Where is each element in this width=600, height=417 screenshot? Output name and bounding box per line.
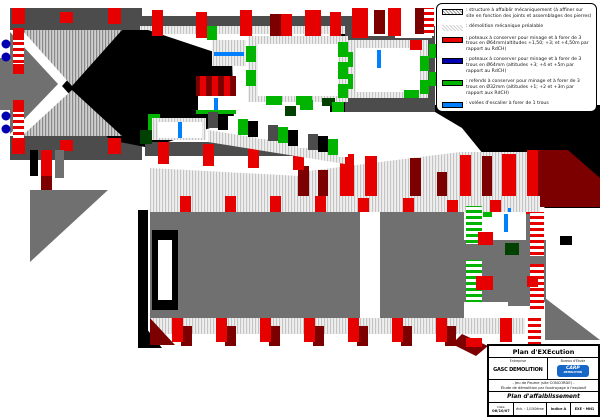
- project-line2: Étude de démolition par foudroyage à l'e…: [489, 386, 598, 391]
- plan-shape-red: [152, 10, 163, 36]
- plan-shape-darkBlue: [2, 112, 11, 121]
- legend-swatch-green: [442, 80, 463, 86]
- plan-shape-darkGreen: [285, 106, 296, 116]
- legend-swatch-red: [442, 37, 463, 43]
- plan-shape-red: [403, 198, 414, 214]
- legend-label: : structure à affaiblir mécaniquement (à…: [466, 8, 592, 19]
- plan-shape-red: [305, 10, 321, 38]
- plan-shape-green: [266, 96, 282, 105]
- plan-shape-lightBlue: [377, 50, 381, 68]
- plan-shape-red: [60, 140, 73, 151]
- plan-shape-green: [207, 26, 217, 40]
- plan-shape-red: [270, 196, 281, 214]
- plan-shape-stripesRW: [13, 112, 24, 138]
- plan-shape-red: [330, 12, 341, 38]
- plan-shape-red: [500, 318, 512, 342]
- plan-shape-red: [527, 276, 538, 287]
- project-description: - Jeu de Paume (site CONCORDE) - Étude d…: [489, 380, 598, 392]
- engineer-label: Bureau d'Etude: [561, 359, 586, 363]
- plan-shape-red: [281, 14, 292, 38]
- plan-shape-red: [158, 142, 169, 164]
- plan-shape-grayDark: [208, 112, 218, 128]
- plan-shape-darkRed: [374, 10, 385, 34]
- plan-shape-green: [246, 70, 256, 86]
- legend-item-4: : refends à conserver pour minage et à f…: [442, 79, 592, 96]
- plan-shape-red: [196, 12, 207, 38]
- plan-shape-black: [288, 130, 298, 146]
- plan-shape-darkBlue: [2, 53, 11, 62]
- plan-shape-darkRed: [270, 14, 281, 38]
- plan-shape-green: [238, 119, 248, 135]
- plan-shape-red: [358, 198, 369, 214]
- plan-shape-black: [218, 114, 228, 130]
- legend-swatch-hatch-structure: [442, 9, 463, 15]
- plan-shape-hall-gap: [360, 212, 380, 318]
- drawing-page: : structure à affaiblir mécaniquement (à…: [0, 0, 600, 417]
- plan-shape-southwest-roof: [30, 190, 108, 262]
- plan-shape-white: [338, 141, 348, 157]
- legend-item-5: : volées d'escalier à forer de 1 trous: [442, 101, 592, 108]
- plan-shape-hall-a: [150, 212, 360, 318]
- legend-label: : poteaux à conserver pour minage et à f…: [466, 36, 592, 53]
- plan-shape-lightBlue: [214, 52, 244, 56]
- plan-shape-green: [404, 90, 419, 98]
- drawing-number-cell: EXE - MN1: [571, 403, 598, 415]
- plan-shape-green: [246, 46, 256, 62]
- plan-shape-red: [200, 76, 206, 96]
- plan-shape-red: [216, 318, 227, 342]
- plan-shape-green: [338, 42, 348, 57]
- contractor-name: GASC DEMOLITION: [493, 367, 543, 373]
- legend-box: : structure à affaiblir mécaniquement (à…: [436, 3, 597, 112]
- plan-shape-red: [436, 318, 447, 342]
- plan-shape-white: [228, 116, 238, 132]
- plan-shape-black: [560, 236, 572, 245]
- plan-shape-darkGreen: [505, 243, 519, 255]
- plan-shape-red: [13, 100, 24, 112]
- plan-shape-red: [225, 196, 236, 214]
- plan-shape-green: [483, 212, 493, 217]
- plan-shape-lightBlue: [504, 214, 508, 232]
- plan-shape-grayDark: [268, 125, 278, 141]
- legend-item-2: : poteaux à conserver pour minage et à f…: [442, 36, 592, 53]
- plan-shape-red: [108, 138, 121, 154]
- plan-shape-green: [300, 100, 313, 110]
- plan-shape-green: [420, 80, 429, 94]
- plan-shape-red: [172, 318, 183, 342]
- plan-shape-lightBlue: [178, 122, 182, 138]
- plan-shape-grayDark: [308, 134, 318, 150]
- index-cell: Indice A: [547, 403, 571, 415]
- plan-shape-grayMid: [55, 150, 64, 178]
- plan-shape-red: [203, 144, 214, 166]
- legend-item-3: : poteaux à conserver pour minage et à f…: [442, 57, 592, 74]
- legend-swatch-hatch-demolition: [442, 25, 463, 31]
- plan-shape-red: [212, 76, 218, 96]
- plan-shape-wing-bottom-edge: [150, 318, 525, 334]
- contractor-label: Entreprise: [510, 359, 526, 363]
- plan-shape-darkBlue: [2, 125, 11, 134]
- plan-shape-darkBlue: [2, 40, 11, 49]
- plan-shape-red: [13, 64, 24, 74]
- plan-shape-east-stair: [492, 212, 526, 240]
- drawing-title: Plan d'affaiblissement: [489, 392, 598, 403]
- legend-label: : poteaux à conserver pour minage et à f…: [466, 57, 592, 74]
- date-cell: Date 06/10/07: [489, 403, 514, 415]
- engineer-cell: Bureau d'Etude CARP DEMOLITION: [548, 358, 598, 379]
- plan-shape-red: [12, 8, 25, 24]
- plan-shape-black: [318, 136, 328, 152]
- plan-shape-darkGreen: [140, 130, 152, 144]
- plan-shape-stripesRW: [528, 318, 541, 344]
- plan-shape-pavilion-top-wall: [10, 8, 142, 30]
- plan-shape-white: [298, 132, 308, 148]
- engineer-logo: CARP DEMOLITION: [557, 365, 589, 377]
- plan-shape-red: [466, 338, 482, 347]
- plan-shape-lightBlue: [214, 98, 218, 111]
- plan-shape-red: [476, 276, 493, 290]
- legend-item-0: : structure à affaiblir mécaniquement (à…: [442, 8, 592, 19]
- plan-shape-green: [338, 84, 348, 98]
- plan-shape-red: [180, 196, 191, 214]
- plan-shape-green: [332, 102, 344, 112]
- plan-shape-red: [304, 318, 315, 342]
- title-block: Plan d'EXEcution Entreprise GASC DEMOLIT…: [487, 344, 600, 417]
- plan-shape-white: [158, 240, 172, 300]
- plan-shape-red: [41, 150, 52, 178]
- plan-shape-hall-b: [380, 212, 464, 318]
- plan-shape-red: [260, 318, 271, 342]
- plan-shape-court-b: [356, 48, 420, 92]
- plan-shape-green: [278, 127, 288, 143]
- legend-label: : volées d'escalier à forer de 1 trous: [466, 101, 549, 107]
- plan-shape-red: [108, 8, 121, 24]
- contractor-cell: Entreprise GASC DEMOLITION: [489, 358, 548, 379]
- plan-shape-stripesRW: [13, 40, 24, 66]
- plan-shape-red: [392, 318, 403, 342]
- titleblock-header: Plan d'EXEcution: [489, 346, 598, 358]
- legend-label: : démolition mécanique préalable: [466, 24, 543, 30]
- plan-shape-white: [258, 123, 268, 139]
- plan-shape-red: [352, 8, 368, 38]
- plan-shape-southeast-roof: [545, 298, 600, 340]
- plan-shape-stripesRW: [424, 8, 434, 36]
- plan-shape-court-a: [258, 44, 338, 96]
- plan-shape-red: [478, 232, 493, 245]
- plan-shape-red: [410, 40, 422, 50]
- plan-shape-black: [30, 150, 38, 176]
- legend-swatch-lightBlue: [442, 102, 463, 108]
- plan-shape-green: [328, 139, 338, 155]
- plan-shape-green: [420, 56, 429, 71]
- plan-shape-red: [348, 318, 359, 342]
- plan-shape-red: [388, 8, 401, 36]
- plan-shape-red: [12, 138, 25, 154]
- legend-label: : refends à conserver pour minage et à f…: [466, 79, 592, 96]
- legend-item-1: : démolition mécanique préalable: [442, 24, 592, 31]
- plan-shape-red: [13, 28, 24, 40]
- plan-shape-red: [240, 10, 252, 36]
- plan-shape-red: [224, 76, 230, 96]
- legend-swatch-darkBlue: [442, 58, 463, 64]
- plan-shape-green: [338, 62, 348, 79]
- plan-shape-black: [248, 121, 258, 137]
- plan-shape-red: [315, 196, 326, 214]
- scale-cell: éch. : 1/150ème: [514, 403, 547, 415]
- plan-shape-stripesRW: [530, 212, 544, 256]
- plan-shape-red: [60, 12, 73, 23]
